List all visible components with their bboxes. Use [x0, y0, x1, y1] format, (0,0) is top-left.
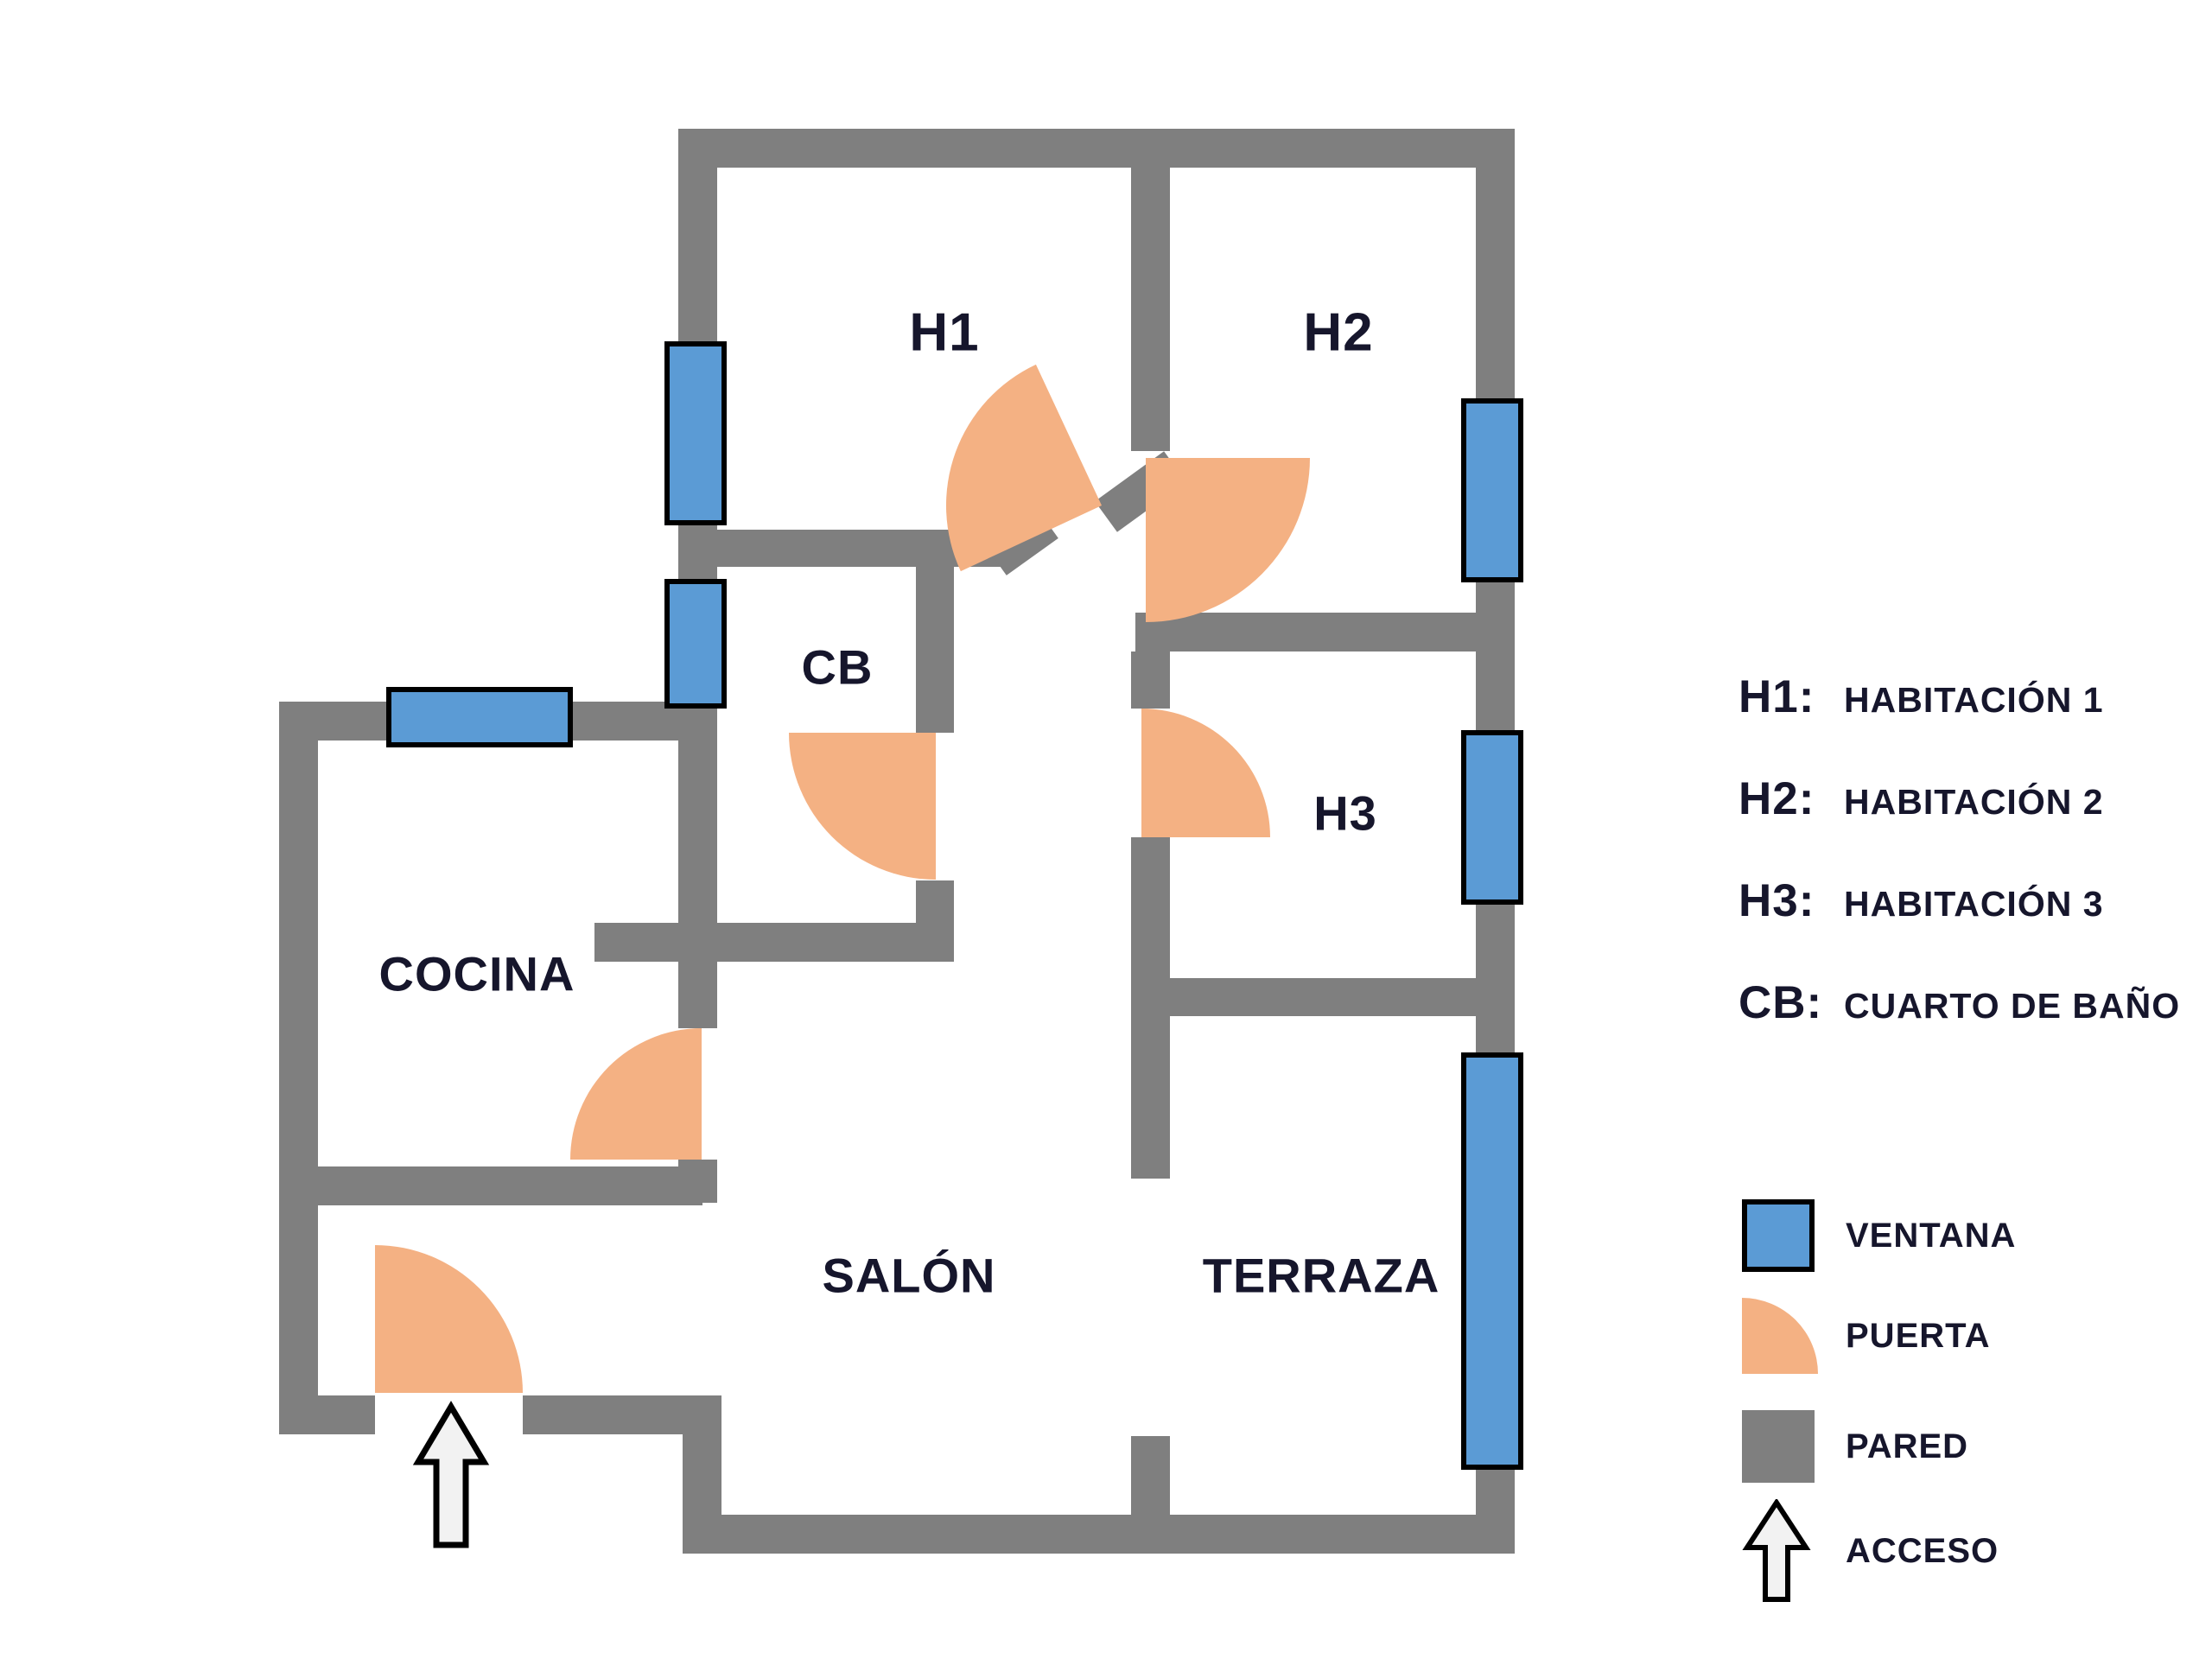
window-marker: [667, 582, 724, 706]
door-arc: [375, 1245, 523, 1393]
wall-segment: [1131, 129, 1170, 451]
room-label-salon: SALÓN: [823, 1249, 996, 1303]
door-arc: [946, 365, 1102, 571]
door-arc: [570, 1028, 702, 1160]
wall-segment: [279, 1166, 702, 1205]
door-arc: [1146, 458, 1310, 622]
wall-segment: [1135, 613, 1515, 652]
door-arc: [1141, 709, 1270, 837]
access-arrow: [418, 1407, 484, 1545]
room-label-h1: H1: [909, 303, 979, 363]
window-marker: [1464, 733, 1521, 902]
floorplan-diagram: H1H2CBH3COCINASALÓNTERRAZA: [0, 0, 2212, 1659]
wall-segment: [594, 923, 954, 962]
door-arc: [789, 733, 936, 880]
wall-segment: [1131, 652, 1170, 709]
room-label-h2: H2: [1303, 303, 1373, 363]
room-label-terraza: TERRAZA: [1203, 1249, 1440, 1303]
wall-segment: [1131, 1016, 1170, 1179]
wall-segment: [678, 129, 717, 344]
wall-segment: [523, 1395, 721, 1434]
wall-segment: [1131, 1436, 1170, 1554]
room-label-h3: H3: [1313, 786, 1377, 841]
floorplan-page: { "palette": { "background": "#ffffff", …: [0, 0, 2212, 1659]
wall-segment: [916, 530, 954, 733]
window-marker: [389, 690, 570, 745]
wall-segment: [678, 1160, 717, 1203]
wall-segment: [683, 1515, 1515, 1554]
window-marker: [667, 344, 724, 523]
room-label-cocina: COCINA: [379, 947, 575, 1001]
wall-segment: [678, 129, 1515, 168]
wall-segment: [1131, 978, 1515, 1016]
wall-segment: [678, 706, 717, 1028]
wall-segment: [279, 702, 318, 1434]
window-marker: [1464, 401, 1521, 580]
room-label-cb: CB: [802, 640, 874, 695]
window-marker: [1464, 1055, 1521, 1467]
